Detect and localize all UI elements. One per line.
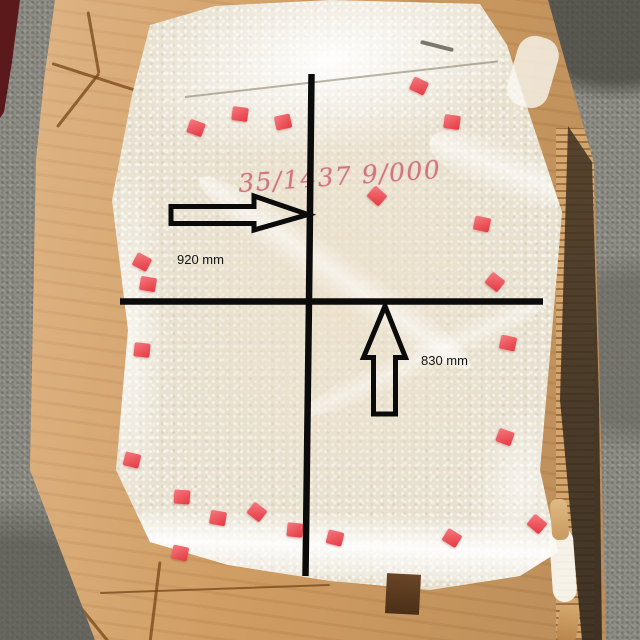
width-label: 920 mm [177, 252, 224, 267]
red-clip [286, 522, 303, 538]
red-clip [174, 489, 191, 504]
red-clip [274, 113, 293, 130]
red-clip [526, 513, 547, 534]
red-clip [473, 215, 492, 232]
red-clip [231, 106, 249, 122]
red-clip [139, 276, 157, 293]
height-label: 830 mm [421, 353, 468, 368]
clips-layer [0, 0, 640, 640]
red-clip [209, 510, 227, 527]
red-clip [186, 119, 206, 138]
red-clip [133, 342, 150, 358]
red-clip [132, 252, 153, 272]
red-clip [484, 272, 505, 293]
red-clip [123, 451, 142, 468]
annotated-package-photo: 35/1437 9/000 920 mm 830 mm [0, 0, 640, 640]
red-clip [495, 428, 515, 447]
red-clip [442, 528, 463, 548]
red-clip [326, 529, 345, 546]
red-clip [171, 544, 190, 561]
red-clip [409, 76, 429, 95]
red-clip [443, 114, 461, 130]
red-clip [499, 334, 518, 351]
red-clip [246, 502, 267, 523]
